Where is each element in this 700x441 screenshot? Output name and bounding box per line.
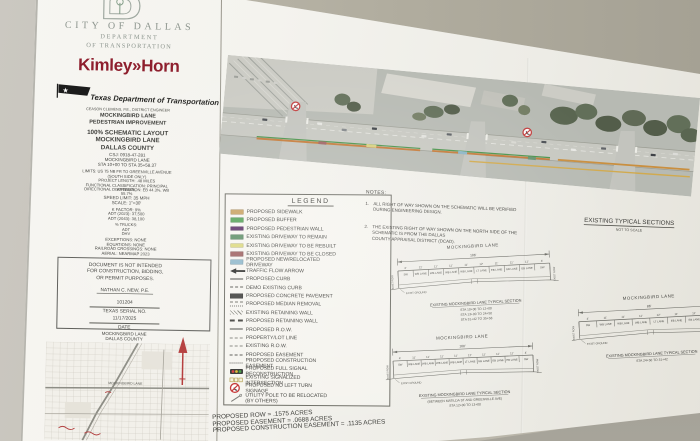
svg-text:11': 11' [454, 354, 458, 358]
svg-text:11': 11' [412, 355, 416, 359]
note-number: 1. [365, 200, 370, 212]
svg-text:EB LANE: EB LANE [491, 267, 503, 272]
svg-text:11': 11' [603, 316, 607, 320]
median-removal-swatch [230, 302, 246, 307]
svg-text:WB LANE: WB LANE [445, 270, 457, 275]
svg-text:EXIST GROUND: EXIST GROUND [587, 341, 608, 346]
svg-text:WB LANE: WB LANE [422, 361, 434, 366]
svg-text:EB LANE: EB LANE [521, 266, 533, 271]
legend-item-label: EXISTING RETAINING WALL [246, 310, 337, 316]
legend-title: LEGEND [243, 197, 379, 206]
svg-text:LT LANE: LT LANE [465, 359, 476, 363]
not-to-scale-note: NOT TO SCALE [595, 227, 663, 233]
map-road-label: MOCKINGBIRD LANE [108, 381, 143, 386]
project-title-line: PEDESTRIAN IMPROVEMENT [67, 118, 189, 126]
traffic-flow-arrow-icon [230, 267, 246, 274]
svg-text:11': 11' [419, 265, 423, 269]
property-lot-line [230, 337, 246, 338]
svg-text:WB LANE: WB LANE [436, 360, 448, 365]
svg-text:4': 4' [399, 356, 402, 360]
svg-text:SW: SW [540, 265, 545, 269]
svg-text:11': 11' [449, 264, 453, 268]
txdot-flag-icon: ★ [54, 82, 94, 101]
svg-text:SW: SW [403, 272, 408, 276]
photo-of-plan-sheet: CITY OF DALLAS DEPARTMENT OF TRANSPORTAT… [0, 0, 700, 441]
legend-item-label: PROPOSED NEW/RELOCATED DRIVEWAY [246, 257, 337, 269]
svg-text:WB LANE: WB LANE [617, 321, 629, 326]
svg-text:11': 11' [440, 354, 444, 358]
no-left-turn-icon [229, 383, 245, 394]
schematic-plan-sheet: CITY OF DALLAS DEPARTMENT OF TRANSPORTAT… [0, 0, 700, 441]
proposed-row-line [230, 329, 246, 330]
svg-text:WB LANE: WB LANE [600, 322, 612, 327]
city-name: CITY OF DALLAS [39, 20, 219, 33]
svg-text:MOCKINGBIRD LANE: MOCKINGBIRD LANE [447, 242, 499, 250]
trucks-line: DHV [81, 231, 171, 237]
svg-text:EXIST GROUND: EXIST GROUND [401, 380, 422, 385]
svg-text:WB LANE: WB LANE [430, 270, 442, 275]
svg-text:SW: SW [586, 323, 591, 327]
svg-text:11': 11' [621, 315, 625, 319]
svg-text:EXIST ROW: EXIST ROW [572, 325, 576, 340]
driveway-rebuilt-swatch [230, 243, 246, 248]
svg-text:SW: SW [524, 357, 529, 361]
aerial-strip-container [219, 55, 700, 197]
svg-text:EB LANE: EB LANE [506, 357, 518, 362]
svg-text:12': 12' [468, 353, 472, 357]
proposed-retaining-wall-line [230, 320, 246, 322]
notes-title: NOTES: [366, 189, 552, 202]
driveway-closed-swatch [230, 251, 246, 256]
svg-text:EB LANE: EB LANE [492, 358, 504, 363]
svg-text:STA 31+42 TO 35+58: STA 31+42 TO 35+58 [461, 316, 493, 322]
svg-text:EXIST ROW: EXIST ROW [386, 365, 390, 380]
svg-text:EXIST ROW: EXIST ROW [553, 266, 557, 281]
station-limits-line: STA 10+00 TO STA 35+58.37 [77, 162, 178, 168]
svg-text:11': 11' [482, 352, 486, 356]
layout-title-line: DALLAS COUNTY [57, 143, 197, 152]
svg-text:11': 11' [434, 264, 438, 268]
concrete-pavement-swatch [230, 293, 246, 298]
svg-text:WB LANE: WB LANE [415, 271, 427, 276]
note-text: ALL RIGHT OF WAY SHOWN ON THE SCHEMATIC … [373, 201, 534, 219]
svg-text:11': 11' [639, 314, 643, 318]
proposed-curb-line [230, 278, 246, 279]
legend-item-label: TRAFFIC FLOW ARROW [246, 268, 337, 274]
svg-text:11': 11' [496, 352, 500, 356]
pedestrian-wall-swatch [230, 226, 246, 231]
svg-text:11': 11' [510, 351, 514, 355]
north-arrow-icon [173, 335, 194, 387]
existing-row-line [230, 346, 246, 347]
svg-text:EXISTING MOCKINGBIRD LANE TYPI: EXISTING MOCKINGBIRD LANE TYPICAL SECTIO… [606, 350, 698, 359]
legend-item-label: PROPERTY/LOT LINE [246, 335, 337, 341]
buffer-swatch [231, 218, 247, 223]
legend-item-label: PROPOSED SIDEWALK [247, 209, 338, 215]
svg-text:12': 12' [657, 313, 661, 317]
legend-item: UTILITY POLE TO BE RELOCATED (BY OTHERS) [229, 392, 389, 405]
svg-text:11': 11' [525, 260, 529, 264]
existing-retaining-wall-line [230, 310, 246, 315]
typical-section-drawing: MOCKINGBIRD LANE86'4'SW11'WB LANE11'WB L… [563, 287, 700, 396]
legend-item-label: PROPOSED MEDIAN REMOVAL [246, 302, 337, 308]
svg-text:WB LANE: WB LANE [635, 320, 647, 325]
signal-reconstruction-icon [229, 368, 245, 374]
title-block: CITY OF DALLAS DEPARTMENT OF TRANSPORTAT… [32, 0, 220, 441]
svg-text:LT LANE: LT LANE [476, 268, 487, 273]
proposed-easement-line [230, 354, 246, 355]
legend-item-label: PROPOSED R.O.W. [246, 327, 337, 333]
legend-item-label: PROPOSED CURB [246, 276, 337, 282]
svg-text:EXISTING MOCKINGBIRD LANE TYPI: EXISTING MOCKINGBIRD LANE TYPICAL SECTIO… [430, 299, 522, 308]
driveway-new-swatch [230, 260, 246, 265]
legend-item: PROPOSED NEW/RELOCATED DRIVEWAY [230, 258, 390, 268]
demo-curb-line [230, 287, 246, 288]
svg-text:11': 11' [674, 312, 678, 316]
construction-easement-line [230, 362, 246, 363]
svg-text:11': 11' [426, 355, 430, 359]
legend-item-label: PROPOSED BUFFER [247, 217, 338, 223]
svg-text:EB LANE: EB LANE [478, 359, 490, 364]
svg-text:11': 11' [510, 260, 514, 264]
svg-text:SW: SW [398, 362, 403, 366]
svg-text:11': 11' [464, 263, 468, 267]
svg-text:MOCKINGBIRD LANE: MOCKINGBIRD LANE [436, 333, 488, 340]
city-of-dallas-logo [98, 0, 144, 21]
svg-text:11': 11' [692, 311, 696, 315]
svg-text:EB LANE: EB LANE [506, 267, 518, 272]
svg-text:4': 4' [525, 351, 528, 355]
txdot-name: Texas Department of Transportation [90, 93, 219, 108]
svg-text:STA 24+50 TO 31+42: STA 24+50 TO 31+42 [636, 357, 668, 363]
svg-text:EB LANE: EB LANE [689, 317, 700, 322]
svg-text:EXIST GROUND: EXIST GROUND [406, 290, 427, 295]
legend-item-label: EXISTING DRIVEWAY TO REMAIN [246, 234, 337, 240]
legend-item-label: PROPOSED RETAINING WALL [246, 318, 337, 324]
signalized-intersection-icon [229, 377, 245, 382]
svg-text:4': 4' [404, 266, 407, 270]
legend-item-label: EXISTING DRIVEWAY TO BE REBUILT [246, 243, 337, 249]
svg-text:12': 12' [479, 262, 483, 266]
svg-text:★: ★ [62, 87, 68, 95]
city-dept-line: DEPARTMENT [57, 33, 201, 42]
svg-text:100': 100' [459, 344, 466, 348]
legend-item-label: DEMO EXISTING CURB [246, 285, 337, 291]
svg-text:11': 11' [495, 261, 499, 265]
svg-text:WB LANE: WB LANE [450, 360, 462, 365]
legend-item-label: UTILITY POLE TO BE RELOCATED (BY OTHERS) [245, 393, 336, 405]
kimley-horn-logo: Kimley»Horn [49, 55, 209, 78]
svg-text:4': 4' [541, 259, 544, 263]
svg-text:4': 4' [586, 317, 589, 321]
typical-section-3: MOCKINGBIRD LANE86'4'SW11'WB LANE11'WB L… [563, 287, 700, 396]
legend-item-label: EXISTING R.O.W. [246, 344, 337, 350]
aerial-imagery-strip [219, 55, 700, 197]
legend-item-label: PROPOSED PEDESTRIAN WALL [246, 226, 337, 232]
note-number: 2. [364, 224, 369, 241]
svg-text:EB LANE: EB LANE [671, 318, 683, 323]
svg-text:EXIST ROW: EXIST ROW [536, 358, 540, 373]
svg-text:LT LANE: LT LANE [653, 319, 664, 324]
svg-text:106': 106' [470, 253, 477, 257]
svg-text:MOCKINGBIRD LANE: MOCKINGBIRD LANE [623, 293, 675, 301]
svg-text:EXIST ROW: EXIST ROW [391, 275, 395, 290]
svg-text:86': 86' [647, 304, 652, 308]
sidewalk-swatch [231, 209, 247, 214]
utility-pole-icon [229, 394, 245, 403]
svg-text:WB LANE: WB LANE [408, 362, 420, 367]
svg-text:WB LANE: WB LANE [460, 269, 472, 274]
driveway-remain-swatch [230, 235, 246, 240]
city-dept-line2: OF TRANSPORTATION [57, 42, 201, 51]
legend-item-label: PROPOSED CONCRETE PAVEMENT [246, 293, 337, 299]
